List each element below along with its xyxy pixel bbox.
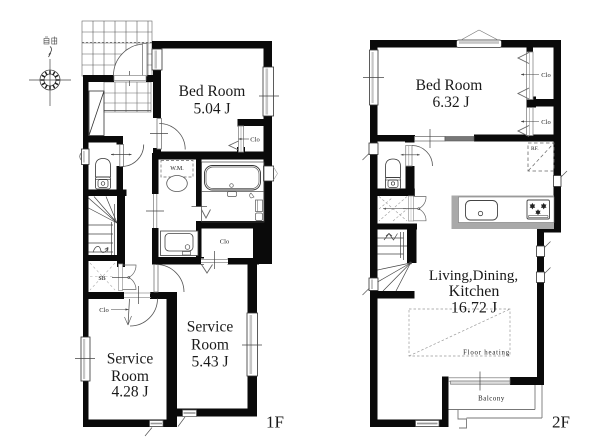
svg-text:Bed Room: Bed Room — [179, 83, 246, 100]
svg-text:Clo: Clo — [250, 137, 259, 144]
svg-text:Living,Dining,: Living,Dining, — [429, 268, 518, 284]
svg-text:Floor heating: Floor heating — [463, 350, 510, 357]
svg-text:Clo: Clo — [541, 72, 550, 79]
svg-text:SB: SB — [98, 276, 105, 282]
svg-text:Bed Room: Bed Room — [416, 77, 483, 94]
svg-text:Balcony: Balcony — [478, 396, 505, 403]
svg-text:2F: 2F — [552, 413, 570, 432]
svg-text:Clo: Clo — [99, 307, 108, 314]
svg-text:Clo: Clo — [541, 119, 550, 126]
svg-text:1F: 1F — [266, 413, 284, 432]
svg-text:6.32 J: 6.32 J — [432, 94, 469, 111]
svg-text:Kitchen: Kitchen — [449, 283, 500, 300]
svg-text:5.43 J: 5.43 J — [191, 354, 228, 371]
svg-text:5.04 J: 5.04 J — [193, 101, 230, 118]
svg-text:W.M.: W.M. — [170, 166, 184, 172]
svg-text:Room: Room — [191, 337, 229, 354]
svg-text:RF.: RF. — [531, 146, 539, 152]
svg-text:Service: Service — [187, 319, 234, 336]
svg-text:16.72 J: 16.72 J — [451, 300, 497, 317]
svg-text:Room: Room — [111, 368, 149, 385]
svg-text:4.28 J: 4.28 J — [111, 384, 148, 401]
svg-text:Clo: Clo — [220, 239, 229, 246]
svg-text:Service: Service — [107, 351, 154, 368]
